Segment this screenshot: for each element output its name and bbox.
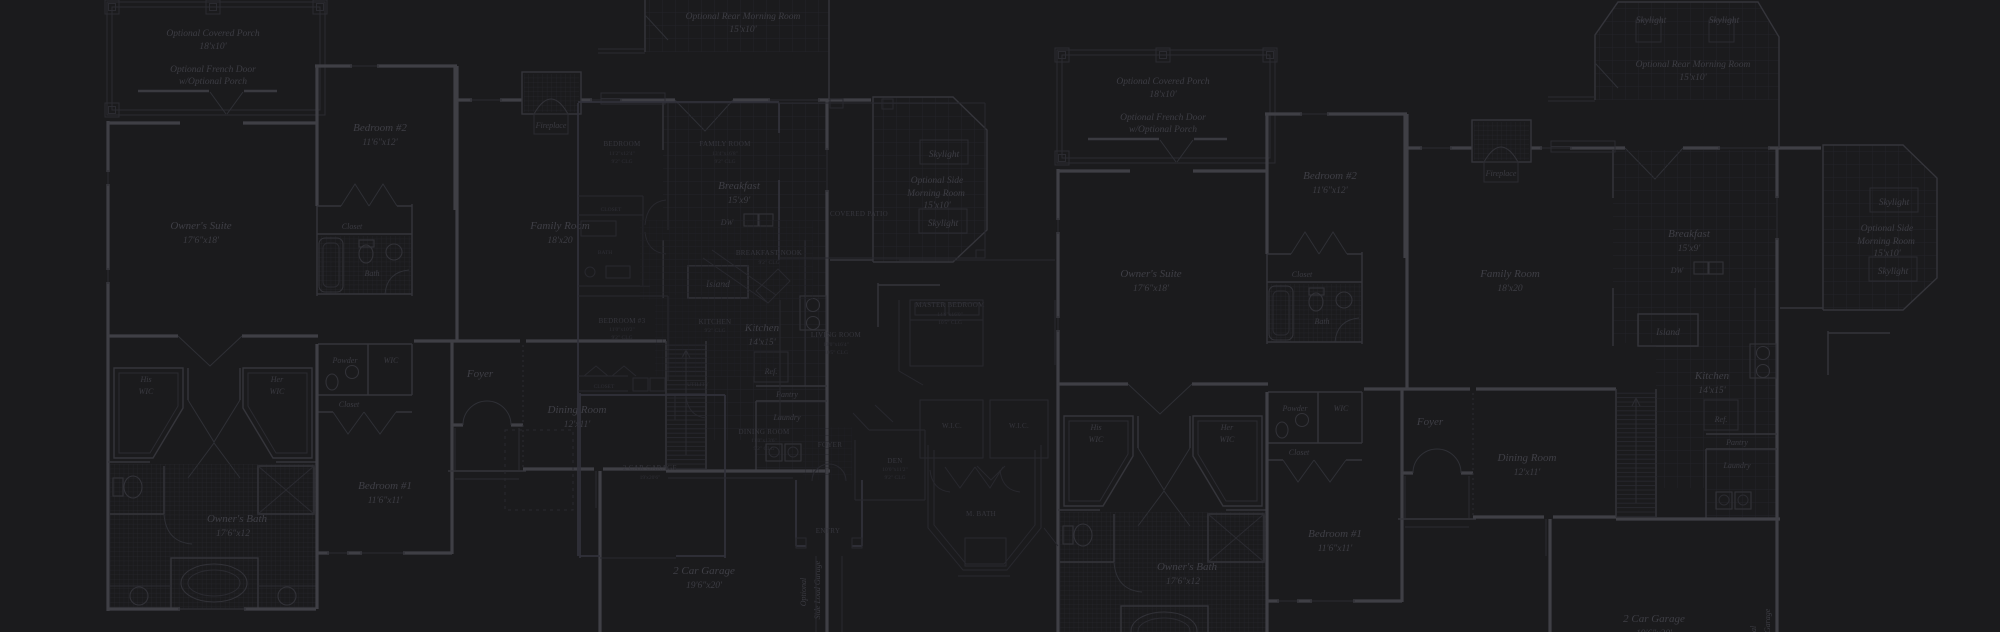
svg-text:FAMILY ROOM: FAMILY ROOM	[699, 140, 751, 148]
svg-text:13'0"x16'4": 13'0"x16'4"	[823, 342, 849, 348]
svg-text:MASTER BEDROOM: MASTER BEDROOM	[915, 301, 985, 309]
svg-text:9'2" CLG: 9'2" CLG	[611, 159, 632, 165]
svg-text:W.I.C.: W.I.C.	[1009, 422, 1029, 430]
svg-text:COVERED PATIO: COVERED PATIO	[830, 210, 888, 218]
svg-text:9'2" CLG: 9'2" CLG	[758, 260, 779, 266]
svg-text:11'2"x12'4": 11'2"x12'4"	[609, 151, 635, 157]
svg-text:BREAKFAST NOOK: BREAKFAST NOOK	[736, 249, 802, 257]
svg-text:10'5" CLG: 10'5" CLG	[824, 350, 848, 356]
svg-text:M. BATH: M. BATH	[966, 510, 996, 518]
svg-text:10'0"x11'2": 10'0"x11'2"	[882, 467, 908, 473]
svg-text:DEN: DEN	[887, 457, 902, 465]
svg-text:BEDROOM #3: BEDROOM #3	[599, 317, 646, 325]
svg-text:10'5" CLG: 10'5" CLG	[938, 320, 962, 326]
svg-text:CLOSET: CLOSET	[594, 384, 615, 390]
svg-text:FOYER: FOYER	[818, 441, 842, 449]
svg-text:13'4"x16'8": 13'4"x16'8"	[712, 151, 738, 157]
svg-text:9'2" CLG: 9'2" CLG	[753, 446, 774, 452]
svg-text:19'x20'6": 19'x20'6"	[640, 475, 661, 481]
svg-text:ENTRY: ENTRY	[816, 527, 840, 535]
svg-text:9'2" CLG: 9'2" CLG	[884, 475, 905, 481]
svg-text:BATH: BATH	[598, 250, 612, 256]
svg-text:9'2" CLG: 9'2" CLG	[704, 328, 725, 334]
svg-text:9'2" CLG: 9'2" CLG	[714, 159, 735, 165]
svg-text:LIVING ROOM: LIVING ROOM	[811, 331, 862, 339]
svg-text:11'0"x13'6": 11'0"x13'6"	[751, 438, 777, 444]
svg-text:KITCHEN: KITCHEN	[699, 318, 732, 326]
svg-text:2 CAR GARAGE: 2 CAR GARAGE	[623, 464, 677, 472]
svg-text:CLOSET: CLOSET	[601, 207, 622, 213]
svg-text:DINING ROOM: DINING ROOM	[739, 428, 790, 436]
svg-text:UTILITY: UTILITY	[687, 382, 709, 388]
svg-text:W.I.C.: W.I.C.	[942, 422, 962, 430]
svg-text:9'2" CLG: 9'2" CLG	[611, 335, 632, 341]
svg-text:11'0"x10'2": 11'0"x10'2"	[609, 327, 635, 333]
svg-text:BEDROOM: BEDROOM	[603, 140, 641, 148]
